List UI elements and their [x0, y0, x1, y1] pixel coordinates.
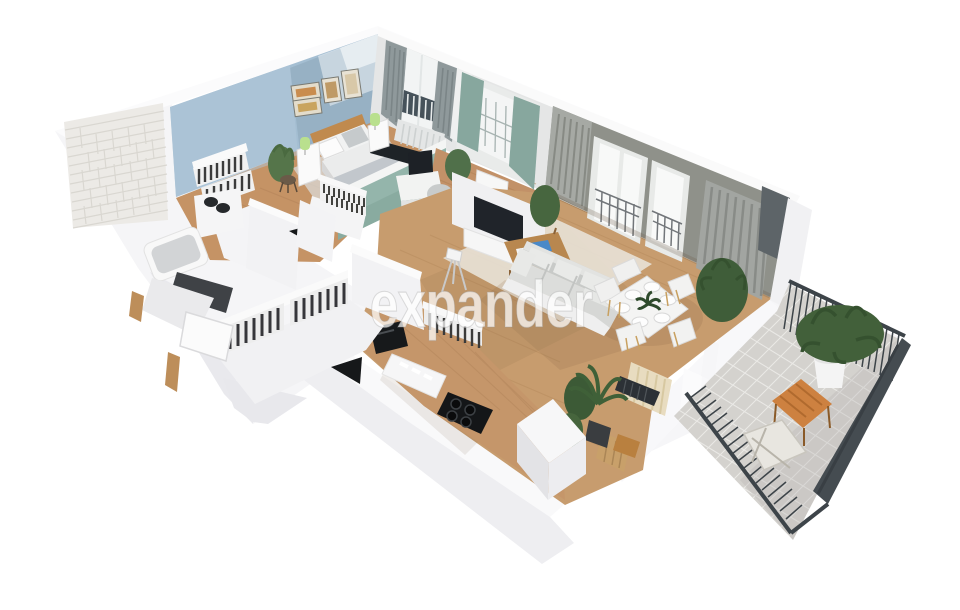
svg-text:expander: expander	[370, 267, 593, 342]
